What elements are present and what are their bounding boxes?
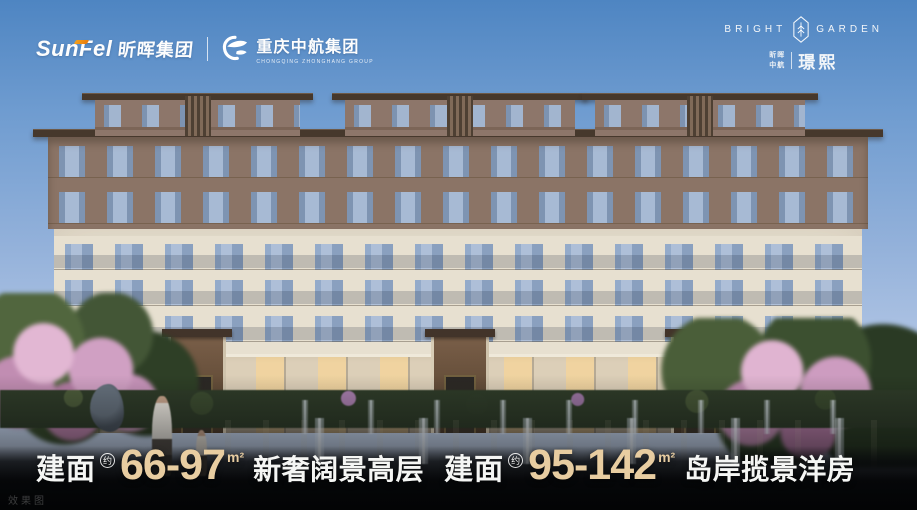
area-unit: m²: [227, 449, 244, 465]
sunfel-orange-swoosh-icon: [74, 40, 89, 44]
zhonghang-logo: 重庆中航集团 CHONGQING ZHONGHANG GROUP: [221, 33, 374, 65]
zhonghang-swirl-icon: [221, 35, 249, 63]
headline-segment-highrise: 建面 约 66-97 m² 新奢阔景高层: [36, 441, 424, 490]
sunfel-wordmark: SunFel: [36, 36, 112, 62]
roof-pavilion-right: [595, 93, 805, 136]
roof-pavilion-left: [95, 93, 300, 136]
property-ad-poster: SunFel 昕晖集团 重庆中航集团 CHONGQING ZHONGHANG G…: [0, 0, 917, 510]
zhonghang-english-name: CHONGQING ZHONGHANG GROUP: [256, 59, 374, 65]
zhonghang-text: 重庆中航集团 CHONGQING ZHONGHANG GROUP: [256, 33, 374, 65]
headline: 建面 约 66-97 m² 新奢阔景高层 建面 约 95-142 m² 岛岸揽景…: [36, 441, 855, 490]
project-logo: BRIGHT GARDEN 昕晖 中航 璟熙: [724, 16, 883, 73]
garden-emblem-icon: [793, 16, 809, 43]
product-description: 岛岸揽景洋房: [684, 448, 855, 488]
area-range: 66-97: [120, 441, 225, 490]
area-label: 建面: [36, 446, 96, 488]
deer-sculpture: [90, 384, 124, 432]
product-description: 新奢阔景高层: [253, 448, 424, 488]
pavilion-louver: [447, 96, 473, 136]
developer-logos: SunFel 昕晖集团 重庆中航集团 CHONGQING ZHONGHANG G…: [36, 33, 374, 65]
pavilion-louver: [185, 96, 211, 136]
headline-segment-flats: 建面 约 95-142 m² 岛岸揽景洋房: [444, 441, 855, 490]
upper-brown-floors: [48, 137, 868, 229]
garden-word: GARDEN: [816, 24, 883, 35]
brand-stack-line2: 中航: [769, 61, 785, 70]
bright-word: BRIGHT: [724, 24, 786, 35]
sunfel-chinese-name: 昕晖集团: [117, 36, 196, 62]
area-unit: m²: [658, 449, 675, 465]
sunfel-logo: SunFel 昕晖集团: [36, 36, 194, 62]
logo-divider: [207, 37, 208, 61]
pavilion-louver: [687, 96, 713, 136]
roof-pavilion-center: [345, 93, 575, 136]
project-name-row: 昕晖 中航 璟熙: [769, 48, 838, 73]
approx-circle-badge: 约: [508, 453, 523, 468]
bright-garden-row: BRIGHT GARDEN: [724, 16, 883, 43]
brand-stack: 昕晖 中航: [769, 51, 785, 69]
brand-stack-line1: 昕晖: [769, 51, 785, 60]
area-range: 95-142: [528, 441, 656, 490]
project-name-divider: [791, 52, 792, 69]
area-label: 建面: [444, 446, 504, 488]
project-chinese-name: 璟熙: [798, 48, 838, 73]
zhonghang-chinese-name: 重庆中航集团: [256, 33, 374, 57]
render-disclaimer-watermark: 效果图: [8, 492, 47, 507]
approx-circle-badge: 约: [100, 453, 115, 468]
